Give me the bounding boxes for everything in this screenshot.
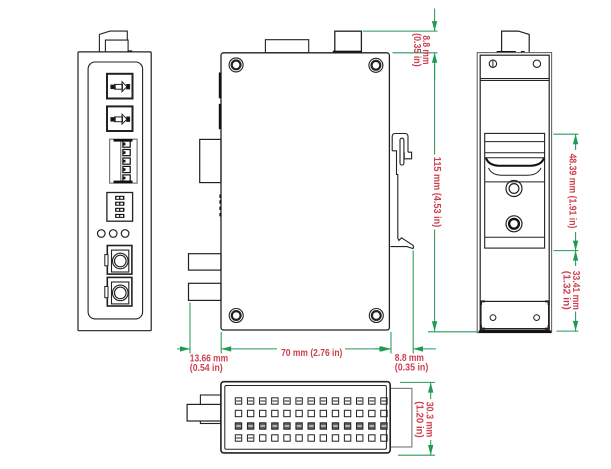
svg-text:48.39 mm (1.91 in): 48.39 mm (1.91 in) — [567, 154, 578, 229]
svg-text:70 mm (2.76 in): 70 mm (2.76 in) — [281, 348, 342, 359]
svg-text:(0.35 in): (0.35 in) — [411, 33, 422, 67]
svg-text:115 mm (4.53 in): 115 mm (4.53 in) — [431, 157, 442, 228]
svg-text:(1.32 in): (1.32 in) — [561, 271, 572, 310]
svg-text:(1.20 in): (1.20 in) — [414, 401, 425, 438]
svg-text:(0.54 in): (0.54 in) — [190, 363, 223, 374]
svg-text:(0.35 in): (0.35 in) — [395, 362, 429, 373]
